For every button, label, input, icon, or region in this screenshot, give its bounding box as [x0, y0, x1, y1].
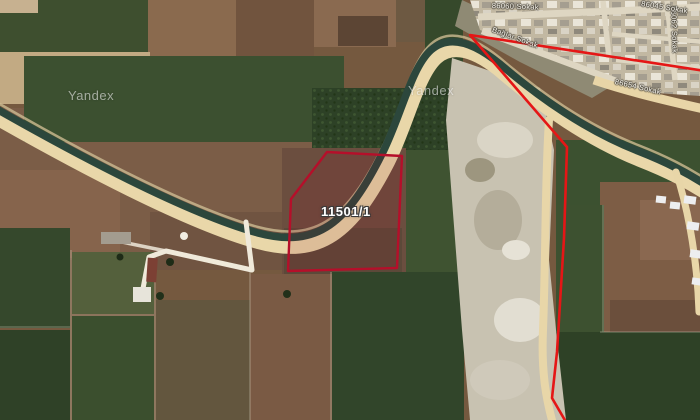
- satellite-map[interactable]: Yandex Yandex 11501/1 86060 Sokak Bağlar…: [0, 0, 700, 420]
- satellite-imagery: [0, 0, 700, 420]
